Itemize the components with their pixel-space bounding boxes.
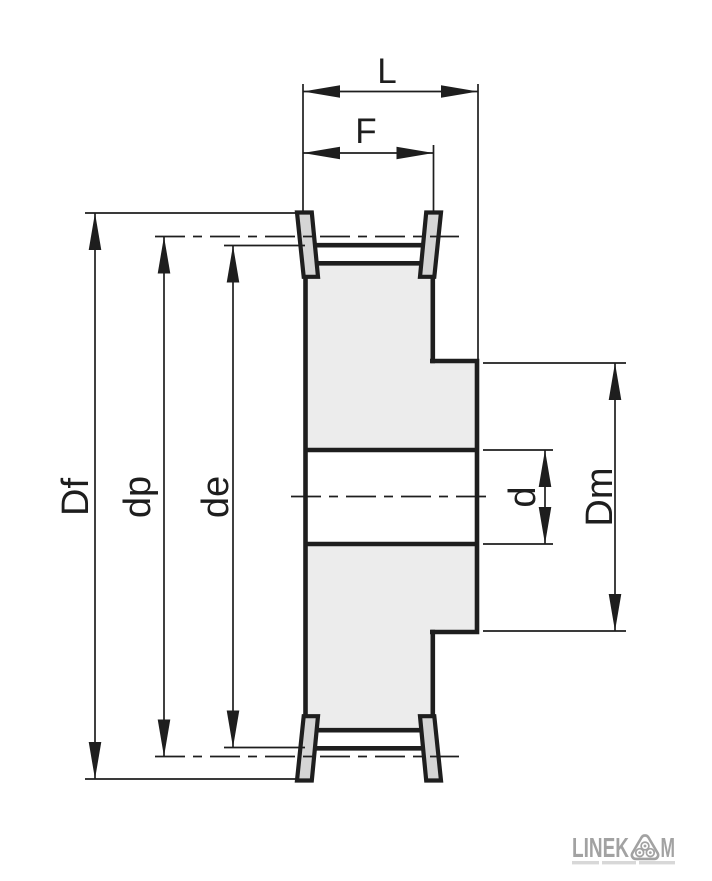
- dimension-label-Df: Df: [55, 478, 97, 516]
- logo-text-left: LINEK: [572, 832, 629, 863]
- L-arrowhead-left: [303, 85, 340, 98]
- three-roller-triangle-icon: [632, 835, 658, 858]
- Dm-arrowhead-top: [609, 363, 622, 400]
- drawing-page: L F Df dp de d: [0, 0, 712, 881]
- Dm-arrowhead-bottom: [609, 594, 622, 631]
- L-arrowhead-right: [441, 85, 478, 98]
- flange-top-right: [420, 213, 441, 277]
- logo-emblem-dot-left: [638, 851, 641, 854]
- Df-arrowhead-top: [89, 213, 102, 250]
- logo-emblem-dot-right: [649, 851, 652, 854]
- dimension-label-dp: dp: [117, 476, 159, 518]
- dp-arrowhead-bottom: [158, 720, 171, 757]
- d-arrowhead-bottom: [539, 507, 552, 544]
- dimension-dp: dp: [117, 237, 170, 757]
- flange-bottom-right: [420, 716, 441, 780]
- linekom-logo: LINEK M: [572, 832, 675, 864]
- dimension-d: d: [483, 450, 553, 544]
- F-arrowhead-left: [303, 147, 340, 160]
- dimension-label-Dm: Dm: [579, 467, 621, 526]
- dimension-label-de: de: [195, 476, 237, 518]
- F-arrowhead-right: [397, 147, 434, 160]
- dimension-label-L: L: [377, 52, 396, 91]
- dimension-label-F: F: [355, 112, 376, 151]
- d-arrowhead-top: [539, 450, 552, 487]
- dp-arrowhead-top: [158, 237, 171, 274]
- dimension-de: de: [195, 246, 305, 748]
- logo-emblem-dot-top: [644, 845, 647, 848]
- logo-tagline-illegible: [572, 861, 675, 864]
- de-arrowhead-bottom: [227, 711, 240, 748]
- dimension-Df: Df: [55, 213, 296, 779]
- pulley-technical-drawing: L F Df dp de d: [0, 0, 712, 881]
- Df-arrowhead-bottom: [89, 742, 102, 779]
- dimension-F: F: [303, 112, 434, 214]
- pulley-upper-section: [306, 264, 477, 450]
- dimension-label-d: d: [502, 486, 544, 507]
- de-arrowhead-top: [227, 246, 240, 283]
- logo-text-right: M: [661, 832, 676, 863]
- pulley-lower-section: [306, 544, 477, 728]
